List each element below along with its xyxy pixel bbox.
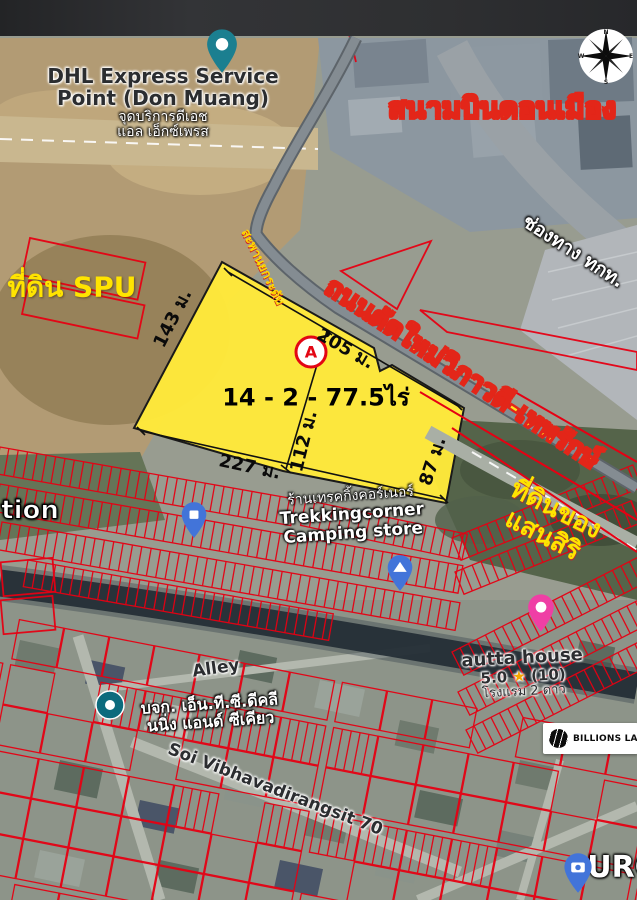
billions-land-logo-icon [549, 729, 568, 748]
compass-w: W [578, 53, 585, 60]
hotel-label: autta house 5.0 ★ (10) โรงแรม 2 ดาว [461, 645, 585, 703]
compass-e: E [629, 53, 633, 60]
dhl-map-pin-icon[interactable] [206, 28, 239, 78]
land-plot-map: N E S W DHL Express Service Point (Don M… [0, 0, 637, 900]
top-dark-band [0, 0, 637, 36]
station-partial-label: tion [1, 496, 59, 525]
compass-s: S [604, 79, 608, 86]
shop-map-pin-icon[interactable] [180, 501, 208, 543]
compass-rose-icon: N E S W [576, 26, 636, 86]
airport-label: สนามบินดอนเมือง [388, 92, 616, 124]
spu-land-label: ที่ดิน SPU [8, 271, 137, 302]
billions-land-text: BILLIONS LAND [573, 734, 637, 744]
dhl-place-label: DHL Express Service Point (Don Muang) จุ… [47, 65, 278, 141]
billions-land-watermark: BILLIONS LAND [543, 723, 637, 754]
url-partial-label: URC [587, 851, 637, 885]
hotel-map-pin-icon[interactable] [527, 593, 555, 637]
photo-map-pin-icon[interactable] [563, 852, 593, 898]
poi-circle-icon[interactable] [94, 689, 126, 725]
compass-n: N [603, 29, 608, 36]
camping-map-pin-icon[interactable] [386, 554, 414, 596]
plot-area-label: 14 - 2 - 77.5ไร่ [222, 385, 410, 412]
trekking-store-label: ร้านเทรคกิ้งคอร์เนอร์ Trekkingcorner Cam… [278, 484, 426, 548]
star-icon: ★ [512, 667, 526, 686]
